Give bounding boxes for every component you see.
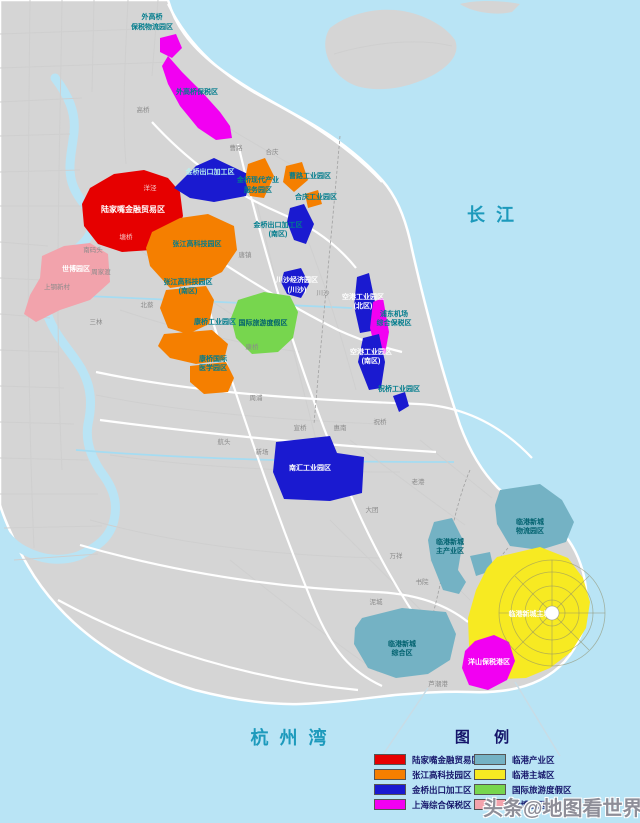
label-lingang-logistics-1: 临港新城 xyxy=(516,517,544,526)
legend-label: 陆家嘴金融贸易区 xyxy=(412,754,480,766)
label-jinqiao-south-2: (南区) xyxy=(269,229,288,238)
label-town-xinchang: 新场 xyxy=(256,447,270,456)
legend-label: 金桥出口加工区 xyxy=(412,784,472,796)
label-town-kangqiao: 康桥 xyxy=(246,342,260,351)
legend: 图 例 陆家嘴金融贸易区 张江高科技园区 金桥出口加工区 上海综合保税区 临港产… xyxy=(360,726,635,754)
label-town-shuyuan: 书院 xyxy=(416,577,430,586)
legend-swatch-blue xyxy=(374,784,406,795)
label-waigaoqiao-logistics-2: 保税物流园区 xyxy=(130,22,173,31)
label-chuansha-2: (川沙) xyxy=(288,286,307,294)
legend-swatch-orange xyxy=(374,769,406,780)
label-lujiazui: 陆家嘴金融贸易区 xyxy=(101,204,165,214)
label-lingang-main-2: 主产业区 xyxy=(436,546,464,555)
label-lingang-main-1: 临港新城 xyxy=(436,537,464,546)
label-town-yangjing: 洋泾 xyxy=(144,183,158,192)
label-waigaoqiao-logistics-1: 外高桥 xyxy=(142,12,164,21)
label-town-tangqiao: 塘桥 xyxy=(120,232,134,241)
legend-title: 图 例 xyxy=(422,726,552,747)
label-expo: 世博园区 xyxy=(62,264,90,273)
map-image: 外高桥 保税物流园区 外高桥保税区 陆家嘴金融贸易区 金桥出口加工区 金桥现代产… xyxy=(0,0,640,823)
label-town-heqing: 合庆 xyxy=(266,147,280,156)
legend-label: 上海综合保税区 xyxy=(412,799,472,811)
label-town-laogang: 老港 xyxy=(412,477,426,486)
label-lingang-logistics-2: 物流园区 xyxy=(516,526,544,535)
legend-swatch-magenta xyxy=(374,799,406,810)
label-town-gaoqiao: 高桥 xyxy=(137,105,151,114)
label-waigaoqiao-ftz: 外高桥保税区 xyxy=(176,87,218,96)
label-caolu-park: 曹路工业园区 xyxy=(289,171,331,180)
label-jinqiao-north: 金桥出口加工区 xyxy=(185,167,235,176)
label-nanhui: 南汇工业园区 xyxy=(289,463,331,472)
label-heqing-park: 合庆工业园区 xyxy=(294,192,337,201)
label-town-caolu: 曹路 xyxy=(230,143,244,152)
label-jinqiao-modern-2: 服务园区 xyxy=(244,185,272,194)
label-town-zhoupu: 周浦 xyxy=(250,393,264,402)
label-zhangjiang-south-2: (南区) xyxy=(179,286,198,295)
label-chuansha-1: 川沙经济园区 xyxy=(275,275,318,284)
label-zhangjiang: 张江高科技园区 xyxy=(173,239,222,248)
label-zhuqiao-park: 祝桥工业园区 xyxy=(378,384,420,393)
legend-item-lingang-industry: 临港产业区 xyxy=(474,754,555,765)
label-lingang-city: 临港新城主城区 xyxy=(509,609,558,618)
label-town-zhoujiadu: 周家渡 xyxy=(91,267,111,276)
label-hangzhou-bay: 杭 州 湾 xyxy=(250,727,329,748)
label-town-shangang: 上钢新村 xyxy=(44,282,71,291)
label-town-beicai: 北蔡 xyxy=(141,300,155,309)
label-medical-2: 医学园区 xyxy=(199,363,227,372)
label-town-huinan: 惠南 xyxy=(334,423,348,432)
label-airport-north-1: 空港工业园区 xyxy=(342,292,384,301)
label-airport-south-2: (南区) xyxy=(362,356,381,365)
label-town-xuanqiao: 宣桥 xyxy=(294,423,308,432)
label-airport-bonded-2: 综合保税区 xyxy=(377,318,412,327)
label-medical-1: 康桥国际 xyxy=(199,354,227,363)
legend-item-jinqiao: 金桥出口加工区 xyxy=(374,784,472,795)
label-jinqiao-south-1: 金桥出口加工区 xyxy=(253,220,303,229)
legend-label: 临港主城区 xyxy=(512,769,555,781)
label-town-nicheng: 泥城 xyxy=(370,598,384,606)
legend-item-lujiazui: 陆家嘴金融贸易区 xyxy=(374,754,480,765)
label-town-hangtou: 航头 xyxy=(218,437,232,446)
label-town-luchaogang: 芦潮港 xyxy=(428,679,448,688)
label-town-tangzhen: 唐镇 xyxy=(239,250,253,259)
legend-label: 张江高科技园区 xyxy=(412,769,472,781)
label-yangtze-river: 长 江 xyxy=(467,205,517,225)
legend-item-bonded: 上海综合保税区 xyxy=(374,799,472,810)
label-lingang-comprehensive-2: 综合区 xyxy=(392,648,413,657)
label-airport-bonded-1: 浦东机场 xyxy=(380,309,408,318)
legend-swatch-yellow xyxy=(474,769,506,780)
label-town-nanmatou: 南码头 xyxy=(83,245,103,254)
legend-swatch-red xyxy=(374,754,406,765)
label-yangshan: 洋山保税港区 xyxy=(468,657,510,666)
legend-item-lingang-city: 临港主城区 xyxy=(474,769,555,780)
label-town-zhuqiao: 祝桥 xyxy=(374,417,388,426)
label-town-chuansha: 川沙 xyxy=(317,290,331,297)
map-canvas: 外高桥 保税物流园区 外高桥保税区 陆家嘴金融贸易区 金桥出口加工区 金桥现代产… xyxy=(0,0,640,823)
legend-label: 临港产业区 xyxy=(512,754,555,766)
label-town-wanxiang: 万祥 xyxy=(390,551,404,560)
label-town-datuan: 大团 xyxy=(366,505,379,514)
legend-item-zhangjiang: 张江高科技园区 xyxy=(374,769,472,780)
label-airport-south-1: 空港工业园区 xyxy=(350,347,392,356)
label-town-sanlin: 三林 xyxy=(90,317,104,326)
label-lingang-comprehensive-1: 临港新城 xyxy=(388,639,416,648)
legend-swatch-teal xyxy=(474,754,506,765)
label-resort: 国际旅游度假区 xyxy=(239,318,288,327)
label-airport-north-2: (北区) xyxy=(354,301,373,310)
label-jinqiao-modern-1: 金桥现代产业 xyxy=(236,175,279,184)
label-kangqiao: 康桥工业园区 xyxy=(194,317,236,326)
watermark: 头条@地图看世界 xyxy=(483,792,640,821)
label-zhangjiang-south-1: 张江高科技园区 xyxy=(164,277,213,286)
